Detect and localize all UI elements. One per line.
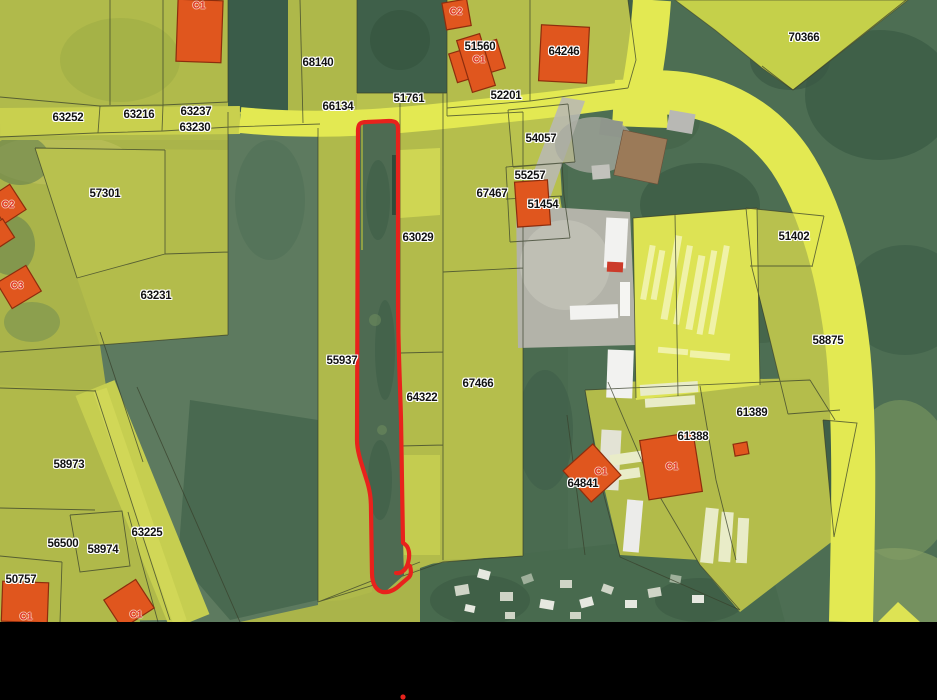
parcel-label-63230: 63230 [180, 122, 211, 134]
parcel-label-63225: 63225 [132, 527, 163, 539]
parcel-label-64246: 64246 [549, 46, 580, 58]
parcel-label-63252: 63252 [53, 112, 84, 124]
parcel-label-55257: 55257 [515, 170, 546, 182]
parcel-label-54057: 54057 [526, 133, 557, 145]
zone-label-c1-bottomleft: C1 [20, 612, 33, 623]
zone-label-c1-61388: C1 [666, 462, 679, 473]
parcel-label-70366: 70366 [789, 32, 820, 44]
zone-label-c1-topleft: C1 [193, 1, 206, 12]
footer-bar [0, 622, 937, 700]
parcel-label-64322: 64322 [407, 392, 438, 404]
parcel-label-51454: 51454 [528, 199, 559, 211]
highlight-marker-dot [400, 694, 405, 699]
zone-label-c2-top: C2 [450, 7, 463, 18]
parcel-label-58875: 58875 [813, 335, 844, 347]
parcel-label-67467: 67467 [477, 188, 508, 200]
parcel-label-64841: 64841 [568, 478, 599, 490]
parcel-label-51560: 51560 [465, 41, 496, 53]
parcel-label-68140: 68140 [303, 57, 334, 69]
parcel-label-61389: 61389 [737, 407, 768, 419]
parcel-label-57301: 57301 [90, 188, 121, 200]
parcel-label-55937: 55937 [327, 355, 358, 367]
zone-label-c2-left: C2 [2, 200, 15, 211]
parcel-label-63216: 63216 [124, 109, 155, 121]
parcel-label-51402: 51402 [779, 231, 810, 243]
parcel-label-50757: 50757 [6, 574, 37, 586]
label-layer: 63252 63216 63237 63230 68140 66134 5176… [0, 0, 937, 622]
parcel-label-63029: 63029 [403, 232, 434, 244]
parcel-label-56500: 56500 [48, 538, 79, 550]
cadastral-map-viewport[interactable]: 63252 63216 63237 63230 68140 66134 5176… [0, 0, 937, 700]
parcel-label-66134: 66134 [323, 101, 354, 113]
parcel-label-51761: 51761 [394, 93, 425, 105]
parcel-label-58974: 58974 [88, 544, 119, 556]
zone-label-c3-left: C3 [11, 281, 24, 292]
zone-label-c1-51560: C1 [473, 55, 486, 66]
parcel-label-58973: 58973 [54, 459, 85, 471]
parcel-label-63231: 63231 [141, 290, 172, 302]
zone-label-c1-bottomcenter: C1 [130, 610, 143, 621]
parcel-label-61388: 61388 [678, 431, 709, 443]
parcel-label-63237: 63237 [181, 106, 212, 118]
parcel-label-52201: 52201 [491, 90, 522, 102]
parcel-label-67466: 67466 [463, 378, 494, 390]
zone-label-c1-64841: C1 [595, 467, 608, 478]
footer-black-bar [0, 622, 937, 700]
